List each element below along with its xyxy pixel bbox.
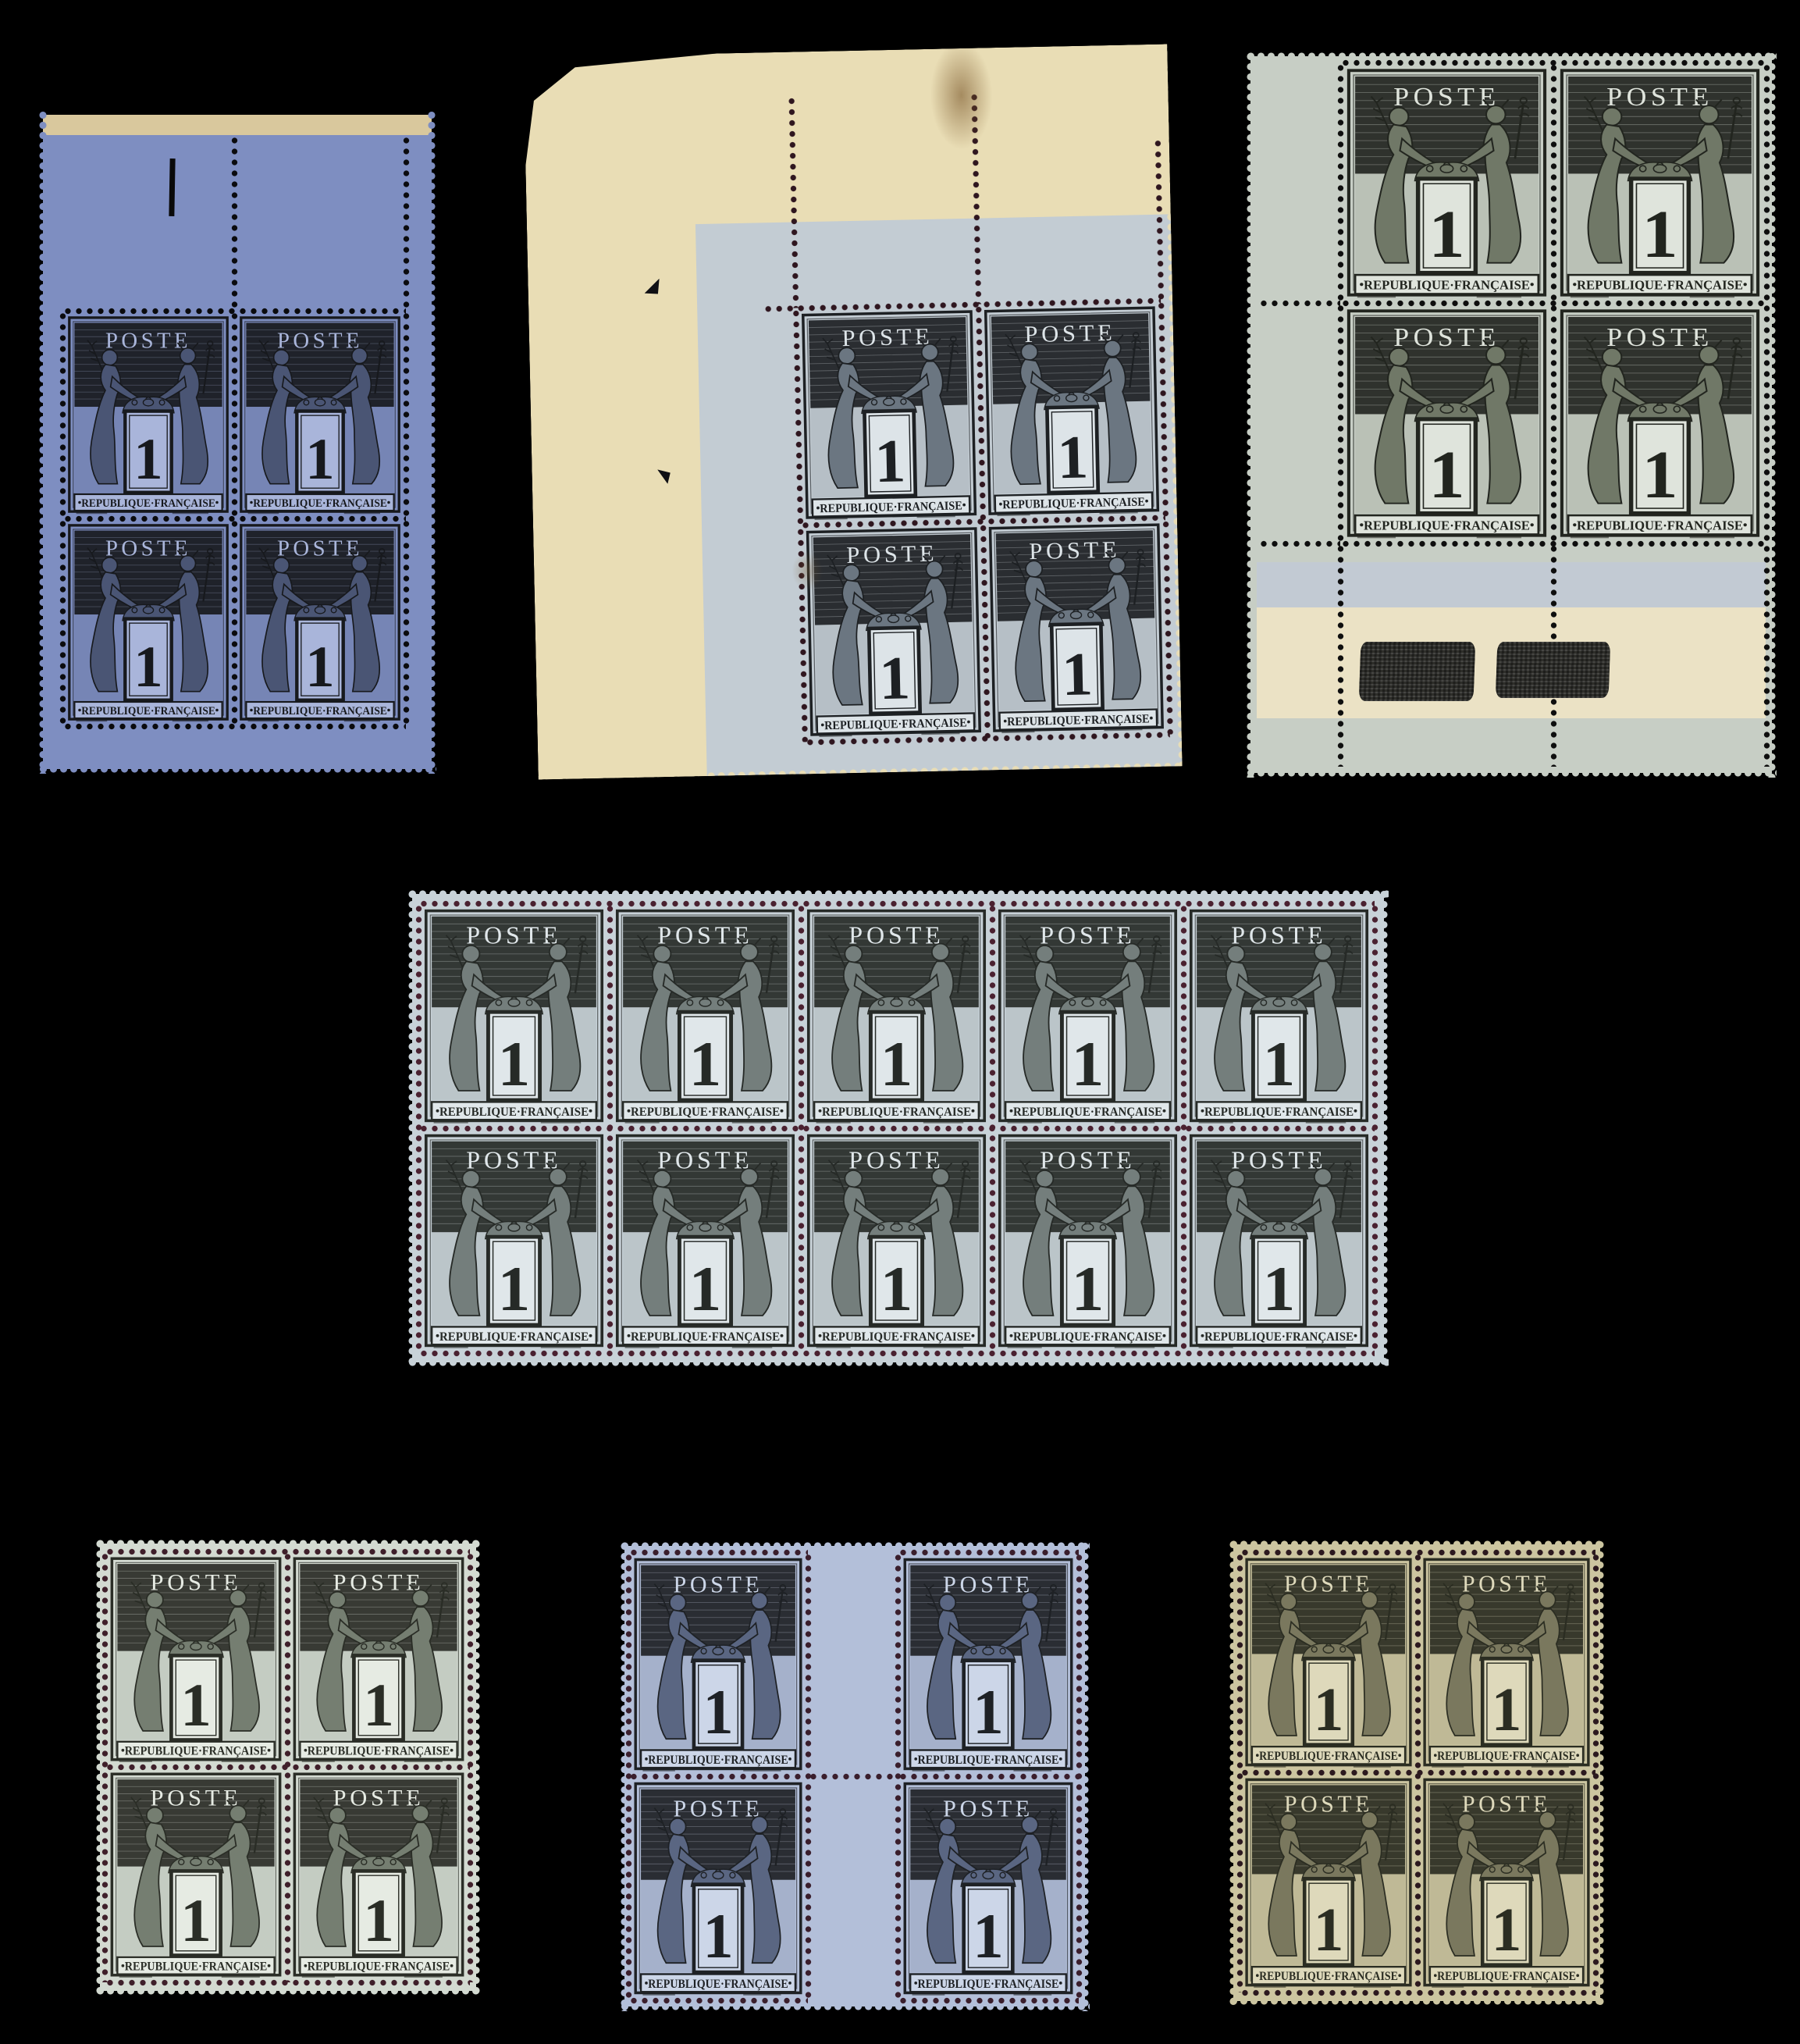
- poste-label: POSTE: [1462, 1570, 1551, 1597]
- value-tablet: 1: [1062, 1237, 1113, 1325]
- designer-imprint: [404, 1761, 443, 1762]
- stamp: POSTE 1 REPUBLIQUE·FRANÇAISE: [1240, 1552, 1418, 1772]
- perforated-edge: [427, 110, 436, 774]
- stamp: POSTE 1 REPUBLIQUE·FRANÇAISE: [801, 1128, 992, 1353]
- engraver-imprint: [76, 720, 108, 721]
- stamp: POSTE 1 REPUBLIQUE·FRANÇAISE: [795, 304, 983, 525]
- banner-text: REPUBLIQUE·FRANÇAISE: [439, 1104, 589, 1119]
- block6-gutter-block: POSTE 1 REPUBLIQUE·FRANÇAISE POSTE: [624, 1546, 1085, 2007]
- stamp: POSTE 1 REPUBLIQUE·FRANÇAISE: [992, 903, 1183, 1128]
- republique-banner: REPUBLIQUE·FRANÇAISE: [1252, 1967, 1405, 1984]
- value-tablet: 1: [694, 1661, 742, 1748]
- banner-text: REPUBLIQUE·FRANÇAISE: [1259, 1750, 1398, 1763]
- sage-stamp-engraving: POSTE 1 REPUBLIQUE·FRANÇAISE: [992, 1128, 1183, 1353]
- perforation-line: [1240, 1549, 1595, 1556]
- poste-label: POSTE: [1040, 1147, 1136, 1174]
- stamp: POSTE 1 REPUBLIQUE·FRANÇAISE: [898, 1776, 1079, 2000]
- perforated-edge: [1379, 889, 1389, 1367]
- designer-imprint: [923, 1347, 963, 1348]
- denomination-numeral: 1: [689, 1254, 722, 1324]
- designer-imprint: [1115, 1122, 1154, 1123]
- republique-banner: REPUBLIQUE·FRANÇAISE: [1252, 1747, 1405, 1764]
- poste-label: POSTE: [1284, 1570, 1373, 1597]
- perforation-line: [628, 1773, 808, 1780]
- republique-banner: REPUBLIQUE·FRANÇAISE: [74, 702, 222, 718]
- bottom-margin-cream-band: [1257, 607, 1766, 718]
- engraver-imprint: [248, 512, 279, 514]
- stain-mark: [929, 40, 994, 151]
- poste-label: POSTE: [848, 1147, 944, 1174]
- stamp-auction-lot-photo: POSTE 1 REPUBLIQUE·FRANÇAISE POSTE: [0, 0, 1800, 2044]
- value-tablet: 1: [354, 1655, 403, 1740]
- poste-label: POSTE: [943, 1795, 1033, 1822]
- perforated-edge: [38, 110, 48, 774]
- sage-stamp-engraving: POSTE 1 REPUBLIQUE·FRANÇAISE: [1340, 62, 1553, 303]
- sage-stamp-engraving: POSTE 1 REPUBLIQUE·FRANÇAISE: [1340, 303, 1553, 543]
- banner-text: REPUBLIQUE·FRANÇAISE: [1364, 518, 1530, 532]
- engraver-imprint: [625, 1122, 660, 1123]
- republique-banner: REPUBLIQUE·FRANÇAISE: [641, 1975, 795, 1992]
- designer-imprint: [1354, 1766, 1391, 1768]
- banner-text: REPUBLIQUE·FRANÇAISE: [1437, 1750, 1576, 1763]
- designer-imprint: [732, 1122, 772, 1123]
- republique-banner: REPUBLIQUE·FRANÇAISE: [1568, 275, 1752, 294]
- engraver-imprint: [248, 720, 279, 721]
- engraver-imprint: [625, 1347, 660, 1348]
- designer-imprint: [1477, 296, 1521, 297]
- banner-text: REPUBLIQUE·FRANÇAISE: [822, 1329, 971, 1344]
- banner-text: REPUBLIQUE·FRANÇAISE: [918, 1754, 1059, 1767]
- value-tablet: 1: [488, 1237, 539, 1325]
- value-tablet: 1: [870, 1237, 922, 1325]
- value-tablet: 1: [1482, 1878, 1531, 1964]
- value-tablet: 1: [1304, 1658, 1353, 1744]
- poste-label: POSTE: [1231, 922, 1327, 949]
- stamp: POSTE 1 REPUBLIQUE·FRANÇAISE: [234, 311, 406, 518]
- stamp: POSTE 1 REPUBLIQUE·FRANÇAISE: [62, 311, 234, 518]
- sage-stamp-engraving: POSTE 1 REPUBLIQUE·FRANÇAISE: [610, 1128, 801, 1353]
- denomination-numeral: 1: [180, 1888, 212, 1955]
- denomination-numeral: 1: [1428, 437, 1464, 512]
- republique-banner: REPUBLIQUE·FRANÇAISE: [814, 1326, 979, 1344]
- republique-banner: REPUBLIQUE·FRANÇAISE: [813, 496, 970, 516]
- banner-text: REPUBLIQUE·FRANÇAISE: [308, 1960, 450, 1974]
- banner-text: REPUBLIQUE·FRANÇAISE: [253, 705, 387, 718]
- designer-imprint: [344, 720, 380, 721]
- poste-label: POSTE: [1231, 1147, 1327, 1174]
- value-tablet: 1: [870, 1012, 922, 1100]
- stamp: POSTE 1 REPUBLIQUE·FRANÇAISE: [62, 518, 234, 726]
- designer-imprint: [923, 1122, 963, 1123]
- perforation-line: [105, 1548, 470, 1555]
- denomination-numeral: 1: [1263, 1029, 1296, 1099]
- poste-label: POSTE: [657, 922, 753, 949]
- engraver-imprint: [816, 1347, 851, 1348]
- engraver-imprint: [1199, 1347, 1233, 1348]
- poste-label: POSTE: [1606, 323, 1713, 352]
- poste-label: POSTE: [1024, 319, 1116, 347]
- designer-imprint: [1306, 1122, 1346, 1123]
- republique-banner: REPUBLIQUE·FRANÇAISE: [1430, 1967, 1583, 1984]
- engraver-imprint: [912, 1770, 945, 1772]
- value-tablet: 1: [679, 1237, 731, 1325]
- republique-banner: REPUBLIQUE·FRANÇAISE: [814, 1102, 979, 1120]
- stamp: POSTE 1 REPUBLIQUE·FRANÇAISE: [418, 903, 610, 1128]
- perforation-line: [231, 135, 238, 311]
- designer-imprint: [1690, 536, 1734, 538]
- republique-banner: REPUBLIQUE·FRANÇAISE: [432, 1326, 596, 1344]
- engraver-imprint: [119, 1761, 152, 1762]
- sage-stamp-engraving: POSTE 1 REPUBLIQUE·FRANÇAISE: [983, 518, 1170, 739]
- value-tablet: 1: [1631, 419, 1689, 514]
- denomination-numeral: 1: [973, 1902, 1003, 1971]
- perforation-line: [418, 1125, 1375, 1132]
- poste-label: POSTE: [466, 1147, 562, 1174]
- perforation-line: [1240, 1769, 1595, 1776]
- engraver-imprint: [1432, 1986, 1464, 1988]
- stamp: POSTE 1 REPUBLIQUE·FRANÇAISE: [1418, 1552, 1595, 1772]
- value-tablet: 1: [297, 411, 343, 493]
- perforation-line: [628, 1997, 808, 2004]
- sage-stamp-engraving: POSTE 1 REPUBLIQUE·FRANÇAISE: [628, 1552, 808, 1776]
- denomination-numeral: 1: [305, 635, 334, 700]
- stamp: POSTE 1 REPUBLIQUE·FRANÇAISE: [898, 1552, 1079, 1776]
- stamp: POSTE 1 REPUBLIQUE·FRANÇAISE: [801, 903, 992, 1128]
- value-tablet: 1: [864, 411, 915, 497]
- sage-stamp-engraving: POSTE 1 REPUBLIQUE·FRANÇAISE: [610, 903, 801, 1128]
- banner-text: REPUBLIQUE·FRANÇAISE: [648, 1978, 788, 1991]
- stamp: POSTE 1 REPUBLIQUE·FRANÇAISE: [234, 518, 406, 726]
- designer-imprint: [541, 1122, 581, 1123]
- stamp: POSTE 1 REPUBLIQUE·FRANÇAISE: [628, 1552, 808, 1776]
- perforation-line: [1258, 540, 1340, 547]
- banner-text: REPUBLIQUE·FRANÇAISE: [1259, 1970, 1398, 1983]
- poste-label: POSTE: [1040, 922, 1136, 949]
- block2-sheet-corner-cream: POSTE 1 REPUBLIQUE·FRANÇAISE POSTE: [523, 44, 1182, 779]
- poste-label: POSTE: [277, 536, 363, 561]
- engraver-imprint: [642, 1770, 674, 1772]
- poste-label: POSTE: [1606, 83, 1713, 112]
- perforated-edge: [38, 764, 436, 774]
- republique-banner: REPUBLIQUE·FRANÇAISE: [1005, 1102, 1170, 1120]
- banner-text: REPUBLIQUE·FRANÇAISE: [439, 1329, 589, 1344]
- sage-stamp-engraving: POSTE 1 REPUBLIQUE·FRANÇAISE: [418, 1128, 610, 1353]
- value-tablet: 1: [297, 619, 343, 700]
- engraver-imprint: [1357, 296, 1396, 297]
- engraver-imprint: [434, 1347, 468, 1348]
- perforated-edge: [1229, 1540, 1605, 1549]
- denomination-numeral: 1: [498, 1029, 531, 1099]
- denomination-numeral: 1: [363, 1672, 394, 1740]
- value-tablet: 1: [1418, 179, 1476, 273]
- value-tablet: 1: [1051, 624, 1102, 710]
- value-tablet: 1: [125, 619, 171, 700]
- designer-imprint: [743, 1994, 781, 1996]
- republique-banner: REPUBLIQUE·FRANÇAISE: [623, 1326, 788, 1344]
- poste-label: POSTE: [657, 1147, 753, 1174]
- designer-imprint: [1013, 1770, 1051, 1772]
- stamp: POSTE 1 REPUBLIQUE·FRANÇAISE: [1340, 62, 1553, 303]
- sage-stamp-engraving: POSTE 1 REPUBLIQUE·FRANÇAISE: [978, 301, 1165, 522]
- value-tablet: 1: [1047, 407, 1097, 493]
- stamp: POSTE 1 REPUBLIQUE·FRANÇAISE: [105, 1767, 287, 1982]
- perforation-line: [1337, 543, 1344, 767]
- poste-label: POSTE: [333, 1785, 425, 1811]
- stamp: POSTE 1 REPUBLIQUE·FRANÇAISE: [1240, 1772, 1418, 1992]
- block5-grey-green: POSTE 1 REPUBLIQUE·FRANÇAISE POSTE: [100, 1544, 476, 1991]
- republique-banner: REPUBLIQUE·FRANÇAISE: [117, 1957, 274, 1975]
- perforation-line: [1340, 59, 1766, 66]
- perforation-line: [898, 1773, 1079, 1780]
- poste-label: POSTE: [1393, 323, 1500, 352]
- poste-label: POSTE: [848, 922, 944, 949]
- banner-text: REPUBLIQUE·FRANÇAISE: [918, 1978, 1059, 1991]
- sage-stamp-engraving: POSTE 1 REPUBLIQUE·FRANÇAISE: [1418, 1772, 1595, 1992]
- perforation-line: [105, 1979, 470, 1986]
- engraver-imprint: [642, 1994, 674, 1996]
- banner-text: REPUBLIQUE·FRANÇAISE: [1364, 277, 1530, 292]
- sage-stamp-engraving: POSTE 1 REPUBLIQUE·FRANÇAISE: [234, 518, 406, 726]
- banner-text: REPUBLIQUE·FRANÇAISE: [822, 1104, 971, 1119]
- denomination-numeral: 1: [874, 427, 907, 496]
- republique-banner: REPUBLIQUE·FRANÇAISE: [995, 493, 1153, 513]
- sage-stamp-engraving: POSTE 1 REPUBLIQUE·FRANÇAISE: [1553, 62, 1766, 303]
- republique-banner: REPUBLIQUE·FRANÇAISE: [910, 1975, 1066, 1992]
- stamp: POSTE 1 REPUBLIQUE·FRANÇAISE: [1340, 303, 1553, 543]
- sage-stamp-engraving: POSTE 1 REPUBLIQUE·FRANÇAISE: [1418, 1552, 1595, 1772]
- designer-imprint: [173, 512, 208, 514]
- republique-banner: REPUBLIQUE·FRANÇAISE: [641, 1750, 795, 1768]
- value-tablet: 1: [354, 1871, 403, 1955]
- perforation-line: [1258, 300, 1340, 307]
- sage-stamp-engraving: POSTE 1 REPUBLIQUE·FRANÇAISE: [62, 518, 234, 726]
- sage-stamp-engraving: POSTE 1 REPUBLIQUE·FRANÇAISE: [992, 903, 1183, 1128]
- designer-imprint: [1115, 1347, 1154, 1348]
- engraver-imprint: [434, 1122, 468, 1123]
- sage-stamp-engraving: POSTE 1 REPUBLIQUE·FRANÇAISE: [898, 1776, 1079, 2000]
- sage-stamp-engraving: POSTE 1 REPUBLIQUE·FRANÇAISE: [287, 1767, 470, 1982]
- perforation-line: [1340, 300, 1766, 307]
- designer-imprint: [1354, 1986, 1391, 1988]
- perforated-edge: [1246, 52, 1255, 778]
- denomination-numeral: 1: [1056, 423, 1089, 492]
- designer-imprint: [1531, 1766, 1569, 1768]
- banner-text: REPUBLIQUE·FRANÇAISE: [1437, 1970, 1576, 1983]
- designer-imprint: [732, 1347, 772, 1348]
- banner-text: REPUBLIQUE·FRANÇAISE: [308, 1745, 450, 1758]
- banner-text: REPUBLIQUE·FRANÇAISE: [1204, 1329, 1354, 1344]
- perforation-line: [628, 1549, 808, 1556]
- sheet-edge-strip: [43, 115, 432, 135]
- value-tablet: 1: [964, 1885, 1013, 1972]
- republique-banner: REPUBLIQUE·FRANÇAISE: [246, 494, 393, 511]
- value-tablet: 1: [1253, 1237, 1304, 1325]
- value-tablet: 1: [171, 1655, 220, 1740]
- banner-text: REPUBLIQUE·FRANÇAISE: [1577, 518, 1743, 532]
- stamp: POSTE 1 REPUBLIQUE·FRANÇAISE: [287, 1767, 470, 1982]
- denomination-numeral: 1: [1072, 1254, 1105, 1324]
- value-tablet: 1: [1418, 419, 1476, 514]
- engraver-imprint: [1008, 1347, 1042, 1348]
- block4-block-of-ten: POSTE 1 REPUBLIQUE·FRANÇAISE POSTE: [412, 894, 1384, 1362]
- stamp: POSTE 1 REPUBLIQUE·FRANÇAISE: [983, 518, 1170, 739]
- engraver-imprint: [1254, 1986, 1286, 1988]
- republique-banner: REPUBLIQUE·FRANÇAISE: [1430, 1747, 1583, 1764]
- sage-stamp-engraving: POSTE 1 REPUBLIQUE·FRANÇAISE: [1553, 303, 1766, 543]
- denomination-numeral: 1: [1263, 1254, 1296, 1324]
- block7-tan: POSTE 1 REPUBLIQUE·FRANÇAISE POSTE: [1233, 1544, 1600, 2001]
- engraver-imprint: [912, 1994, 945, 1996]
- perforation-line: [898, 1549, 1079, 1556]
- denomination-numeral: 1: [180, 1672, 212, 1740]
- republique-banner: REPUBLIQUE·FRANÇAISE: [1568, 515, 1752, 534]
- denomination-numeral: 1: [1072, 1029, 1105, 1099]
- stamp: POSTE 1 REPUBLIQUE·FRANÇAISE: [992, 1128, 1183, 1353]
- poste-label: POSTE: [333, 1569, 425, 1596]
- value-tablet: 1: [1631, 179, 1689, 273]
- republique-banner: REPUBLIQUE·FRANÇAISE: [1005, 1326, 1170, 1344]
- stamp: POSTE 1 REPUBLIQUE·FRANÇAISE: [628, 1776, 808, 2000]
- denomination-numeral: 1: [1314, 1675, 1344, 1744]
- value-tablet: 1: [1304, 1878, 1353, 1964]
- stamp: POSTE 1 REPUBLIQUE·FRANÇAISE: [800, 522, 987, 742]
- denomination-numeral: 1: [1642, 197, 1677, 272]
- republique-banner: REPUBLIQUE·FRANÇAISE: [432, 1102, 596, 1120]
- denomination-numeral: 1: [1428, 197, 1464, 272]
- republique-banner: REPUBLIQUE·FRANÇAISE: [1197, 1102, 1361, 1120]
- banner-text: REPUBLIQUE·FRANÇAISE: [648, 1754, 788, 1767]
- stamp: POSTE 1 REPUBLIQUE·FRANÇAISE: [1183, 1128, 1375, 1353]
- engraver-imprint: [1571, 536, 1609, 538]
- ink-mark: [657, 465, 674, 486]
- stamp: POSTE 1 REPUBLIQUE·FRANÇAISE: [418, 1128, 610, 1353]
- republique-banner: REPUBLIQUE·FRANÇAISE: [74, 494, 222, 511]
- designer-imprint: [1531, 1986, 1569, 1988]
- designer-imprint: [541, 1347, 581, 1348]
- banner-text: REPUBLIQUE·FRANÇAISE: [1013, 1329, 1162, 1344]
- denomination-numeral: 1: [363, 1888, 394, 1955]
- perforated-edge: [407, 1358, 1389, 1367]
- designer-imprint: [404, 1976, 443, 1978]
- denomination-numeral: 1: [878, 644, 911, 713]
- sage-stamp-engraving: POSTE 1 REPUBLIQUE·FRANÇAISE: [628, 1776, 808, 2000]
- ink-mark: [169, 158, 175, 216]
- engraver-imprint: [1199, 1122, 1233, 1123]
- poste-label: POSTE: [1462, 1790, 1551, 1818]
- perforation-line: [105, 1764, 470, 1771]
- denomination-numeral: 1: [498, 1254, 531, 1324]
- republique-banner: REPUBLIQUE·FRANÇAISE: [300, 1957, 457, 1975]
- ink-mark: [642, 279, 666, 300]
- sage-stamp-engraving: POSTE 1 REPUBLIQUE·FRANÇAISE: [105, 1551, 287, 1767]
- sage-stamp-engraving: POSTE 1 REPUBLIQUE·FRANÇAISE: [801, 1128, 992, 1353]
- value-tablet: 1: [1062, 1012, 1113, 1100]
- denomination-numeral: 1: [1314, 1896, 1344, 1964]
- value-tablet: 1: [679, 1012, 731, 1100]
- value-tablet: 1: [171, 1871, 220, 1955]
- value-tablet: 1: [964, 1661, 1013, 1748]
- sage-stamp-engraving: POSTE 1 REPUBLIQUE·FRANÇAISE: [234, 311, 406, 518]
- value-tablet: 1: [488, 1012, 539, 1100]
- perforated-edge: [1229, 1996, 1605, 2006]
- engraver-imprint: [1008, 1122, 1042, 1123]
- republique-banner: REPUBLIQUE·FRANÇAISE: [623, 1102, 788, 1120]
- perforation-line: [1240, 1989, 1595, 1996]
- value-tablet: 1: [1253, 1012, 1304, 1100]
- republique-banner: REPUBLIQUE·FRANÇAISE: [1355, 515, 1539, 534]
- sage-stamp-engraving: POSTE 1 REPUBLIQUE·FRANÇAISE: [1183, 1128, 1375, 1353]
- stamp: POSTE 1 REPUBLIQUE·FRANÇAISE: [610, 903, 801, 1128]
- perforated-edge: [95, 1539, 481, 1548]
- poste-label: POSTE: [1029, 536, 1121, 564]
- engraver-imprint: [76, 512, 108, 514]
- sage-stamp-engraving: POSTE 1 REPUBLIQUE·FRANÇAISE: [418, 903, 610, 1128]
- engraver-imprint: [1254, 1766, 1286, 1768]
- banner-text: REPUBLIQUE·FRANÇAISE: [125, 1745, 268, 1758]
- poste-label: POSTE: [674, 1795, 763, 1822]
- denomination-numeral: 1: [1492, 1896, 1522, 1964]
- value-tablet: 1: [869, 628, 920, 714]
- engraver-imprint: [1571, 296, 1609, 297]
- perforation-line: [1763, 543, 1770, 767]
- sage-stamp-engraving: POSTE 1 REPUBLIQUE·FRANÇAISE: [62, 311, 234, 518]
- designer-imprint: [222, 1761, 260, 1762]
- poste-label: POSTE: [466, 922, 562, 949]
- sage-stamp-engraving: POSTE 1 REPUBLIQUE·FRANÇAISE: [800, 522, 987, 742]
- republique-banner: REPUBLIQUE·FRANÇAISE: [1355, 275, 1539, 294]
- sage-stamp-engraving: POSTE 1 REPUBLIQUE·FRANÇAISE: [1183, 903, 1375, 1128]
- banner-text: REPUBLIQUE·FRANÇAISE: [253, 497, 387, 510]
- sage-stamp-engraving: POSTE 1 REPUBLIQUE·FRANÇAISE: [105, 1767, 287, 1982]
- designer-imprint: [1013, 1994, 1051, 1996]
- stamp: POSTE 1 REPUBLIQUE·FRANÇAISE: [105, 1551, 287, 1767]
- poste-label: POSTE: [151, 1569, 242, 1596]
- banner-text: REPUBLIQUE·FRANÇAISE: [1013, 1104, 1162, 1119]
- block3-left-and-bottom-margin: POSTE 1 REPUBLIQUE·FRANÇAISE POSTE: [1250, 56, 1772, 773]
- banner-text: REPUBLIQUE·FRANÇAISE: [1577, 277, 1743, 292]
- banner-text: REPUBLIQUE·FRANÇAISE: [81, 497, 215, 510]
- denomination-numeral: 1: [1642, 437, 1677, 512]
- engraver-imprint: [1357, 536, 1396, 538]
- denomination-numeral: 1: [880, 1029, 913, 1099]
- block1-blue-top-margin: POSTE 1 REPUBLIQUE·FRANÇAISE POSTE: [43, 115, 432, 769]
- perforation-line: [808, 1773, 898, 1780]
- value-tablet: 1: [1482, 1658, 1531, 1744]
- sage-stamp-engraving: POSTE 1 REPUBLIQUE·FRANÇAISE: [287, 1551, 470, 1767]
- denomination-numeral: 1: [1061, 640, 1094, 709]
- banner-text: REPUBLIQUE·FRANÇAISE: [631, 1104, 780, 1119]
- designer-imprint: [1306, 1347, 1346, 1348]
- poste-label: POSTE: [105, 536, 191, 561]
- perforation-line: [403, 135, 410, 311]
- poste-label: POSTE: [1284, 1790, 1373, 1818]
- designer-imprint: [222, 1976, 260, 1978]
- denomination-numeral: 1: [880, 1254, 913, 1324]
- stamp: POSTE 1 REPUBLIQUE·FRANÇAISE: [1183, 903, 1375, 1128]
- designer-imprint: [1690, 296, 1734, 297]
- perforation-line: [763, 304, 795, 312]
- stamp: POSTE 1 REPUBLIQUE·FRANÇAISE: [287, 1551, 470, 1767]
- republique-banner: REPUBLIQUE·FRANÇAISE: [1197, 1326, 1361, 1344]
- designer-imprint: [1477, 536, 1521, 538]
- denomination-numeral: 1: [703, 1678, 733, 1748]
- sage-stamp-engraving: POSTE 1 REPUBLIQUE·FRANÇAISE: [801, 903, 992, 1128]
- stamp: POSTE 1 REPUBLIQUE·FRANÇAISE: [1553, 303, 1766, 543]
- stamp: POSTE 1 REPUBLIQUE·FRANÇAISE: [610, 1128, 801, 1353]
- bottom-margin-bluegrey-band: [1257, 562, 1766, 607]
- banner-text: REPUBLIQUE·FRANÇAISE: [81, 705, 215, 718]
- poste-label: POSTE: [841, 323, 934, 351]
